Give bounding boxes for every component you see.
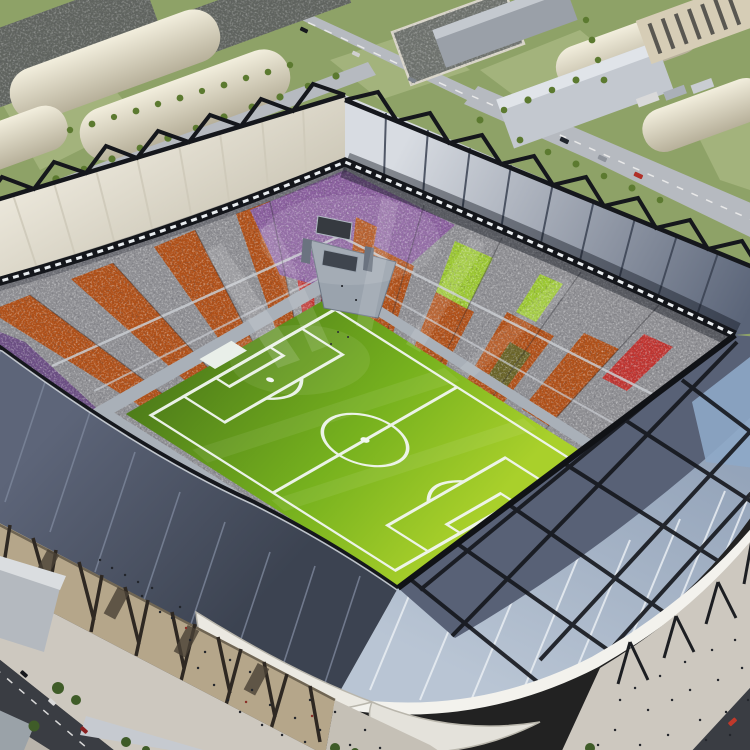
stadium-aerial-render: Aerial render of a modern football stadi… bbox=[0, 0, 750, 750]
